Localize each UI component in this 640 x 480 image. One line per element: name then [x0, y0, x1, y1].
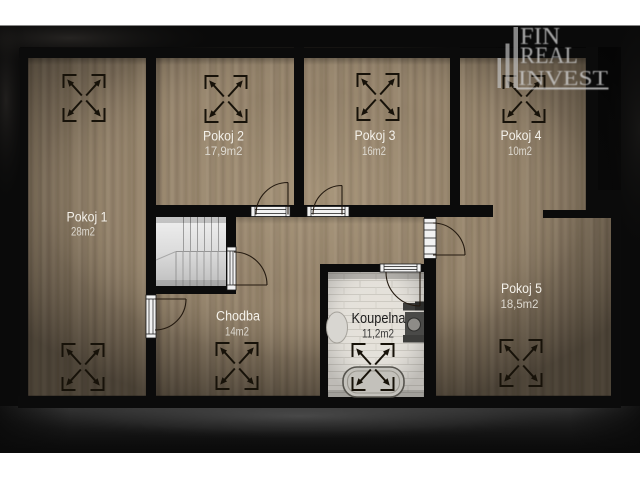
- svg-text:16m2: 16m2: [362, 146, 386, 158]
- svg-text:Pokoj 5: Pokoj 5: [501, 281, 542, 296]
- svg-text:Pokoj 2: Pokoj 2: [203, 129, 244, 144]
- svg-text:INVEST: INVEST: [518, 66, 608, 90]
- svg-text:17,9m2: 17,9m2: [205, 146, 243, 158]
- svg-text:Pokoj 3: Pokoj 3: [355, 128, 396, 143]
- svg-text:Pokoj 4: Pokoj 4: [501, 128, 542, 143]
- svg-text:11,2m2: 11,2m2: [362, 329, 394, 341]
- svg-text:14m2: 14m2: [225, 327, 249, 339]
- svg-text:Pokoj 1: Pokoj 1: [67, 210, 108, 225]
- svg-text:10m2: 10m2: [508, 146, 532, 158]
- svg-text:Koupelna: Koupelna: [352, 311, 407, 327]
- svg-text:18,5m2: 18,5m2: [501, 299, 539, 311]
- svg-text:Chodba: Chodba: [216, 309, 260, 324]
- svg-text:28m2: 28m2: [71, 227, 95, 239]
- svg-text:REAL: REAL: [520, 43, 578, 68]
